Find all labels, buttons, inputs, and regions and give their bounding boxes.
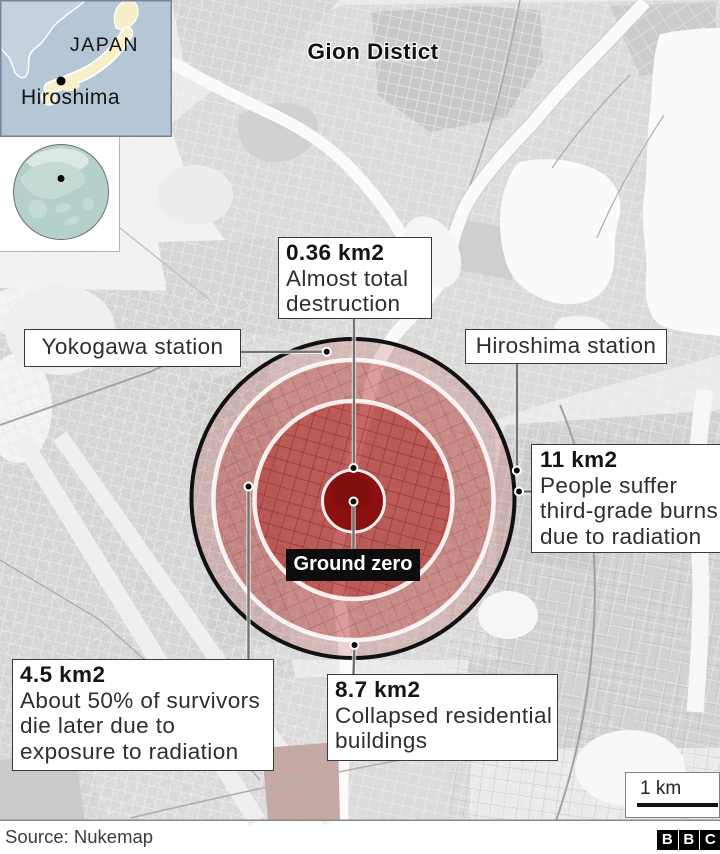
svg-text:Hiroshima: Hiroshima (21, 86, 120, 109)
svg-text:JAPAN: JAPAN (70, 34, 139, 56)
